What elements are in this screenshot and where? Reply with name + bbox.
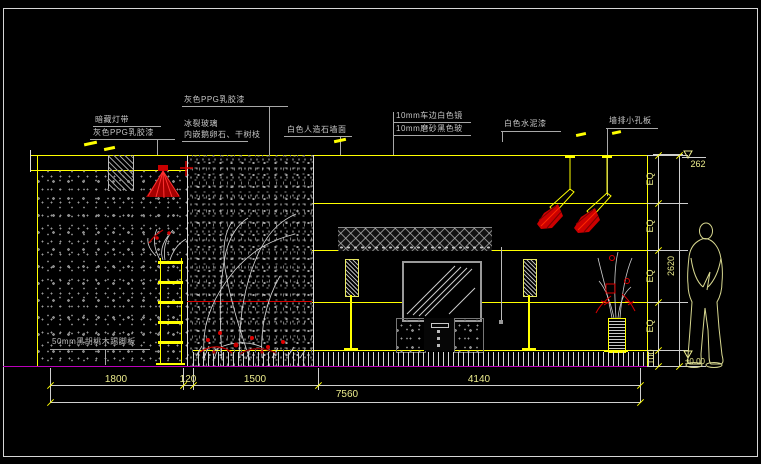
spotlight-icon xyxy=(574,157,612,233)
human-figure xyxy=(686,223,723,368)
ladder-flower-art xyxy=(148,229,186,260)
light-cross-icon xyxy=(180,161,193,176)
spotlight-icon xyxy=(537,157,575,229)
artwork-overlay xyxy=(0,0,761,464)
tv-reflection xyxy=(407,266,475,316)
level-marker-icon xyxy=(684,151,692,358)
cad-drawing-canvas[interactable]: 暗藏灯带 灰色PPG乳胶漆 灰色PPG乳胶漆 冰裂玻璃 内嵌鹅卵石、干树枝 白色… xyxy=(0,0,761,464)
downlight-icon xyxy=(146,165,180,198)
